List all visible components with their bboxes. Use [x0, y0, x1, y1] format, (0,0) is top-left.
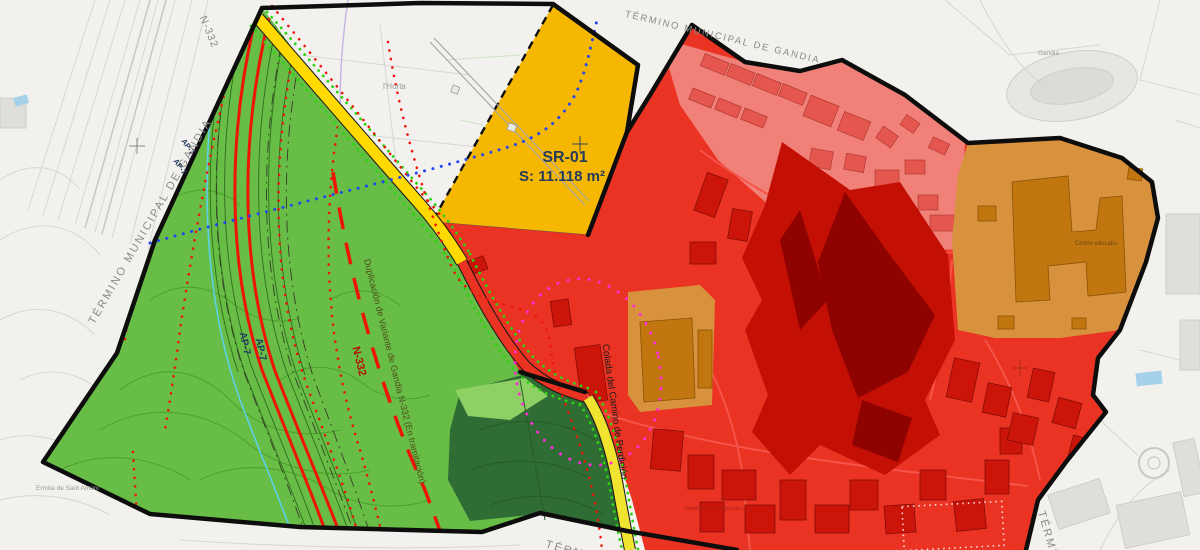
- map-shape: [844, 153, 866, 172]
- map-shape: [650, 429, 683, 471]
- map-shape: [850, 480, 878, 510]
- gray-building: [1180, 320, 1200, 370]
- map-shape: [745, 505, 775, 533]
- map-shape: [978, 206, 996, 221]
- map-shape: [690, 242, 716, 264]
- map-shape: [954, 499, 987, 532]
- label-sector-area: S: 11.118 m²: [519, 168, 605, 185]
- map-shape: [985, 460, 1009, 494]
- map-shape: [640, 318, 695, 402]
- label-centre: Centre educatiu: [1075, 241, 1117, 247]
- map-shape: [550, 299, 571, 327]
- map-canvas: TÉRMINO MUNICIPAL DE GANDIA TÉRMINO MUNI…: [0, 0, 1200, 550]
- label-sector-code: SR-01: [542, 149, 587, 166]
- map-shape: [920, 470, 946, 500]
- label-lhorta: l'Horta: [383, 82, 406, 91]
- map-shape: [905, 160, 925, 174]
- map-shape: [1007, 413, 1038, 446]
- map-shape: [918, 195, 938, 210]
- label-gandia: Gandia: [1038, 50, 1059, 57]
- map-shape: [884, 504, 916, 534]
- map-shape: [688, 455, 714, 489]
- map-shape: [815, 505, 849, 533]
- planning-map: TÉRMINO MUNICIPAL DE GANDIA TÉRMINO MUNI…: [0, 0, 1200, 550]
- map-shape: [998, 316, 1014, 329]
- label-unitat: Unitat serveis específics: [684, 506, 744, 512]
- label-ermita: Ermita de Sant Antoni: [36, 485, 99, 492]
- map-shape: [698, 330, 712, 388]
- facilities-zone-west: [628, 285, 715, 412]
- pool: [1135, 371, 1162, 387]
- map-shape: [1072, 318, 1086, 329]
- map-shape: [930, 215, 954, 231]
- map-shape: [722, 470, 756, 500]
- map-shape: [780, 480, 806, 520]
- gray-building: [1166, 214, 1200, 294]
